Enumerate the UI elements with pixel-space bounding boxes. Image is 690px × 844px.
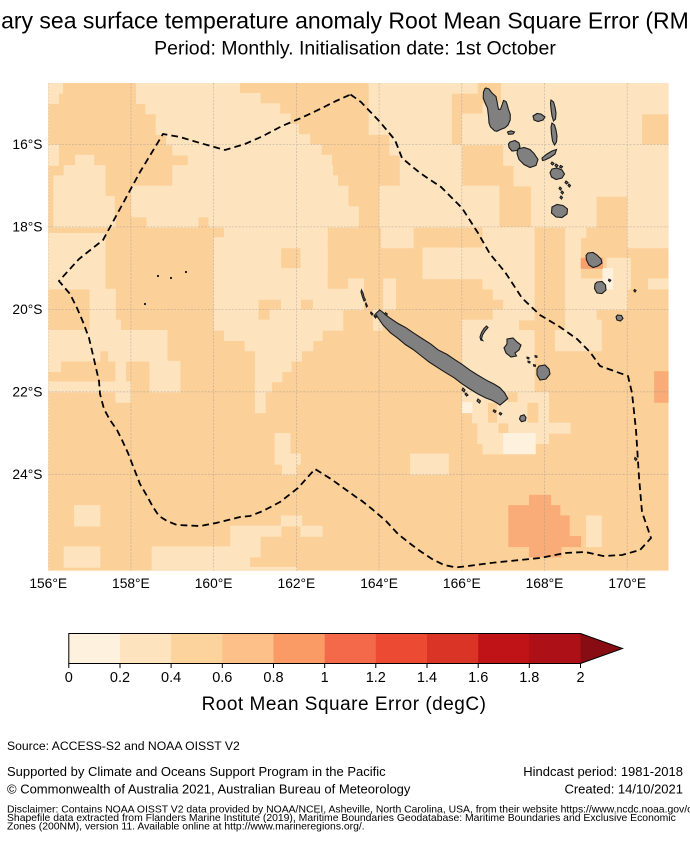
- svg-text:160°E: 160°E: [195, 576, 233, 591]
- svg-text:24°S: 24°S: [12, 467, 42, 482]
- svg-text:16°S: 16°S: [12, 137, 42, 152]
- svg-text:February sea surface temperatu: February sea surface temperature anomaly…: [0, 8, 690, 34]
- svg-text:2: 2: [576, 670, 584, 686]
- svg-text:Source: ACCESS-S2 and NOAA OIS: Source: ACCESS-S2 and NOAA OISST V2: [7, 739, 240, 753]
- svg-text:0.2: 0.2: [110, 670, 130, 686]
- svg-text:0.8: 0.8: [263, 670, 283, 686]
- svg-text:158°E: 158°E: [112, 576, 150, 591]
- svg-text:168°E: 168°E: [526, 576, 564, 591]
- svg-text:0.6: 0.6: [212, 670, 232, 686]
- svg-text:164°E: 164°E: [360, 576, 398, 591]
- svg-text:1.6: 1.6: [468, 670, 488, 686]
- svg-text:1.8: 1.8: [519, 670, 539, 686]
- svg-text:0: 0: [65, 670, 73, 686]
- svg-text:1.4: 1.4: [417, 670, 437, 686]
- svg-text:Root Mean Square Error (degC): Root Mean Square Error (degC): [202, 694, 487, 715]
- svg-text:156°E: 156°E: [29, 576, 67, 591]
- svg-text:166°E: 166°E: [443, 576, 481, 591]
- svg-text:Hindcast period: 1981-2018: Hindcast period: 1981-2018: [523, 764, 683, 779]
- svg-text:162°E: 162°E: [278, 576, 316, 591]
- svg-text:© Commonwealth of Australia 20: © Commonwealth of Australia 2021, Austra…: [7, 782, 411, 797]
- svg-text:Supported by Climate and Ocean: Supported by Climate and Oceans Support …: [7, 764, 386, 779]
- svg-text:Zones (200NM), version 11. Ava: Zones (200NM), version 11. Available onl…: [7, 822, 365, 833]
- svg-text:22°S: 22°S: [12, 385, 42, 400]
- svg-text:0.4: 0.4: [161, 670, 181, 686]
- svg-text:Period: Monthly. Initialisatio: Period: Monthly. Initialisation date: 1s…: [154, 38, 556, 60]
- svg-text:20°S: 20°S: [12, 302, 42, 317]
- svg-text:18°S: 18°S: [12, 220, 42, 235]
- svg-text:Created: 14/10/2021: Created: 14/10/2021: [564, 782, 683, 797]
- svg-text:1.2: 1.2: [366, 670, 386, 686]
- svg-text:170°E: 170°E: [608, 576, 646, 591]
- svg-text:1: 1: [321, 670, 329, 686]
